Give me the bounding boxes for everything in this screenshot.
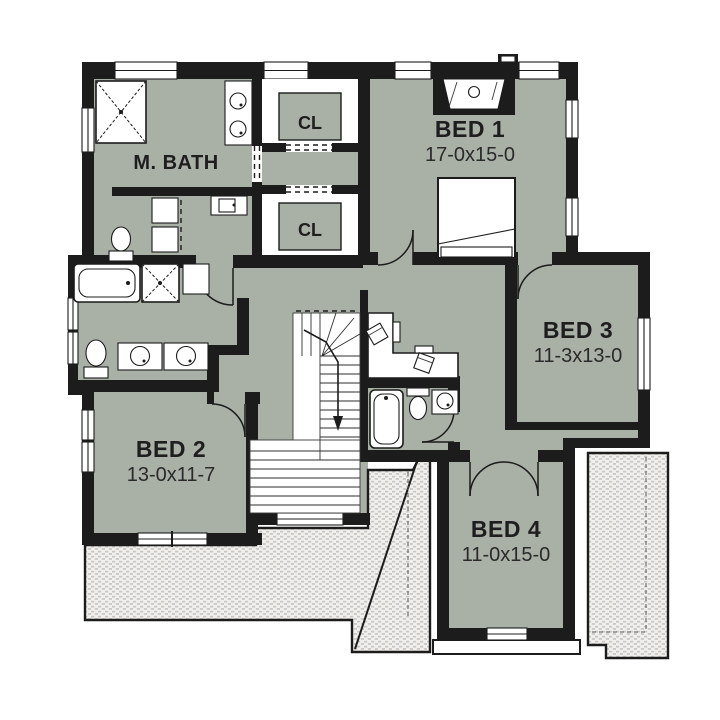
wall-closet2-south (258, 255, 363, 268)
window (82, 442, 94, 472)
bathtub-symbol (370, 390, 403, 448)
wall-corridor-north-b (233, 255, 262, 268)
wall-bed3-closet-north (505, 422, 650, 430)
fireplace-symbol (433, 54, 518, 115)
wall-closet-east (358, 62, 370, 265)
closet2-opening (286, 185, 332, 194)
window (68, 298, 78, 330)
double-sink-vanity (225, 81, 252, 145)
wall-left-upper (82, 62, 94, 262)
wall-bed4-east (563, 438, 575, 640)
wall-bed3-north (552, 252, 650, 265)
roof-right-section (588, 453, 668, 658)
wall-mbath-south (112, 187, 252, 196)
hall-opening (252, 146, 262, 182)
window (277, 513, 343, 525)
bed-symbol (438, 178, 515, 258)
bed4-label: BED 4 (471, 516, 541, 542)
wall-hallbath-south (68, 380, 219, 392)
vestibule-sink (211, 196, 247, 215)
window (264, 62, 308, 79)
closet2-label: CL (298, 220, 322, 240)
window (638, 318, 650, 390)
wall-centerbath-east-b (448, 442, 460, 462)
closet1-label: CL (298, 113, 322, 133)
wall-bed4-north-b (538, 450, 575, 462)
window (395, 62, 431, 79)
toilet-symbol (84, 340, 108, 378)
wall-bed3-closet-south (575, 438, 650, 448)
bed1-label: BED 1 (435, 116, 505, 142)
wall-bed4-west (437, 452, 449, 640)
shower-symbol (96, 81, 146, 143)
floor-plan-svg: BED 1 17-0x15-0 BED 2 13-0x11-7 BED 3 11… (0, 0, 720, 720)
shower-symbol (142, 264, 179, 302)
master-bath-label: M. BATH (133, 152, 218, 174)
window (519, 62, 559, 79)
bed2-label: BED 2 (136, 436, 206, 462)
wall-bed2-north-a (207, 392, 214, 404)
window (138, 531, 207, 547)
bed1-dims: 17-0x15-0 (425, 144, 515, 166)
wall-bed3-west (505, 265, 517, 430)
wall-bed2-north-b (245, 392, 260, 404)
bed4-dims: 11-0x15-0 (462, 544, 551, 566)
bed3-dims: 11-3x13-0 (534, 345, 623, 367)
window (566, 198, 578, 236)
window (82, 108, 94, 152)
stairwell (293, 313, 360, 460)
window (82, 410, 94, 440)
corner-sink (432, 390, 458, 414)
window (115, 62, 177, 79)
wall-hallbath-east (237, 298, 249, 347)
porch-step (433, 640, 580, 654)
window (487, 628, 527, 640)
closet1-opening (286, 143, 332, 152)
bed2-dims: 13-0x11-7 (127, 464, 216, 486)
floor-plan-page: BED 1 17-0x15-0 BED 2 13-0x11-7 BED 3 11… (0, 0, 720, 720)
window (68, 332, 78, 364)
bed3-label: BED 3 (543, 317, 613, 343)
bathtub-symbol (74, 264, 140, 302)
window (566, 100, 578, 138)
shower-landing (183, 264, 209, 294)
